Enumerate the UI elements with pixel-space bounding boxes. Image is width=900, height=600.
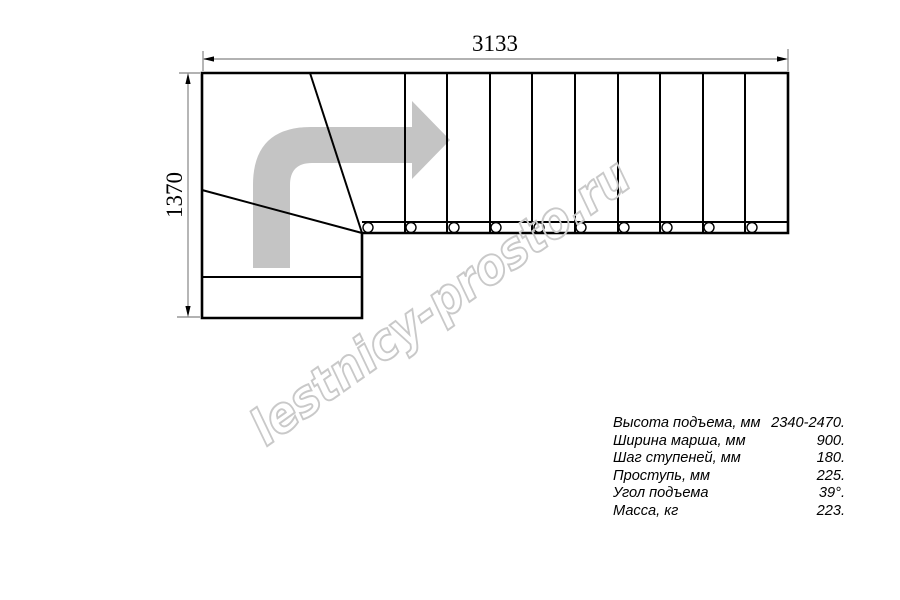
- spec-row-tread: Проступь, мм 225.: [613, 468, 845, 486]
- spec-value: 180.: [817, 450, 845, 468]
- staircase-drawing-canvas: 3133 1370 lestnicy-prosto.ru Высота подъ…: [0, 0, 900, 600]
- spec-value: 2340-2470.: [771, 415, 845, 433]
- spec-row-flight-width: Ширина марша, мм 900.: [613, 433, 845, 451]
- dim-arrow-left: [203, 56, 214, 61]
- width-dimension-label: 3133: [472, 31, 518, 56]
- direction-arrow-icon: [253, 101, 450, 268]
- dim-arrow-up: [185, 73, 190, 84]
- spec-row-step-rise: Шаг ступеней, мм 180.: [613, 450, 845, 468]
- spec-label: Ширина марша, мм: [613, 433, 746, 451]
- spec-value: 225.: [817, 468, 845, 486]
- dimension-top: 3133: [203, 31, 788, 71]
- watermark: lestnicy-prosto.ru: [239, 147, 641, 457]
- dim-arrow-down: [185, 306, 190, 317]
- spec-value: 39°.: [819, 485, 845, 503]
- spec-label: Шаг ступеней, мм: [613, 450, 741, 468]
- height-dimension-label: 1370: [162, 172, 187, 218]
- spec-row-height: Высота подъема, мм 2340-2470.: [613, 415, 845, 433]
- spec-label: Угол подъема: [613, 485, 708, 503]
- spec-value: 223.: [817, 503, 845, 521]
- dimension-left: 1370: [162, 73, 200, 317]
- spec-table: Высота подъема, мм 2340-2470. Ширина мар…: [613, 415, 845, 521]
- spec-label: Масса, кг: [613, 503, 678, 521]
- spec-row-angle: Угол подъема 39°.: [613, 485, 845, 503]
- spec-label: Высота подъема, мм: [613, 415, 761, 433]
- spec-label: Проступь, мм: [613, 468, 710, 486]
- spec-value: 900.: [817, 433, 845, 451]
- dim-arrow-right: [777, 56, 788, 61]
- watermark-text: lestnicy-prosto.ru: [239, 147, 641, 457]
- spec-row-mass: Масса, кг 223.: [613, 503, 845, 521]
